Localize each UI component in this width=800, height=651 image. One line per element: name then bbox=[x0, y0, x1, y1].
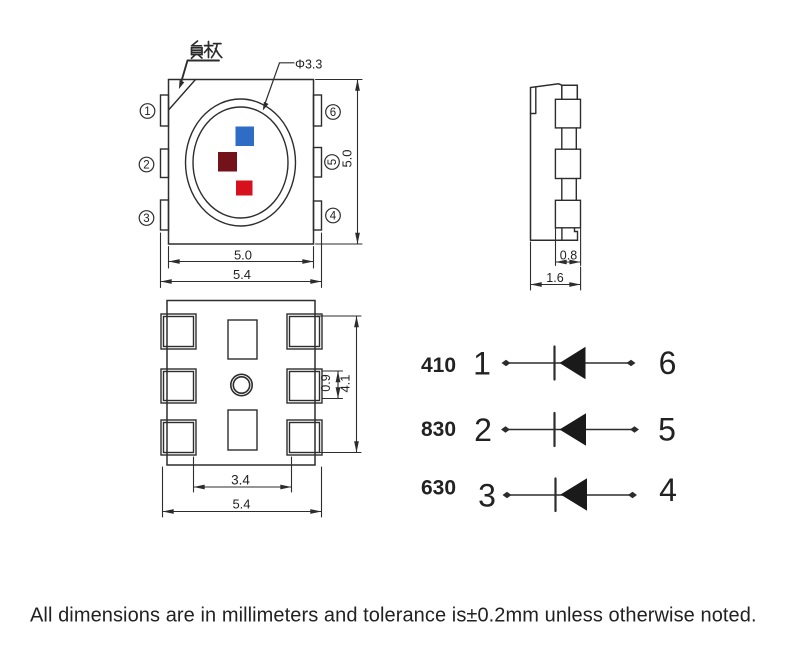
svg-text:5: 5 bbox=[658, 412, 676, 448]
svg-text:5.0: 5.0 bbox=[234, 248, 252, 263]
svg-text:410: 410 bbox=[421, 354, 456, 377]
svg-text:2: 2 bbox=[143, 160, 149, 172]
svg-text:4: 4 bbox=[330, 211, 337, 223]
svg-text:4: 4 bbox=[659, 472, 677, 508]
svg-text:4.1: 4.1 bbox=[338, 374, 353, 392]
svg-text:6: 6 bbox=[659, 345, 677, 381]
svg-text:830: 830 bbox=[421, 418, 456, 441]
svg-text:0.8: 0.8 bbox=[560, 249, 577, 263]
svg-text:3: 3 bbox=[478, 478, 496, 514]
svg-text:5.4: 5.4 bbox=[233, 267, 251, 282]
svg-text:1.6: 1.6 bbox=[546, 271, 563, 285]
svg-text:5.0: 5.0 bbox=[340, 149, 355, 167]
svg-text:Φ3.3: Φ3.3 bbox=[295, 58, 322, 72]
svg-text:1: 1 bbox=[144, 106, 150, 118]
svg-text:3: 3 bbox=[143, 213, 149, 225]
svg-text:1: 1 bbox=[473, 346, 491, 382]
svg-text:5.4: 5.4 bbox=[232, 497, 250, 512]
svg-text:5: 5 bbox=[327, 159, 339, 165]
svg-text:3.4: 3.4 bbox=[231, 473, 250, 488]
svg-text:2: 2 bbox=[474, 412, 492, 448]
svg-text:6: 6 bbox=[330, 107, 336, 119]
svg-text:630: 630 bbox=[421, 477, 456, 500]
svg-text:0.9: 0.9 bbox=[319, 374, 333, 391]
svg-text:All dimensions are in millimet: All dimensions are in millimeters and to… bbox=[30, 605, 757, 627]
